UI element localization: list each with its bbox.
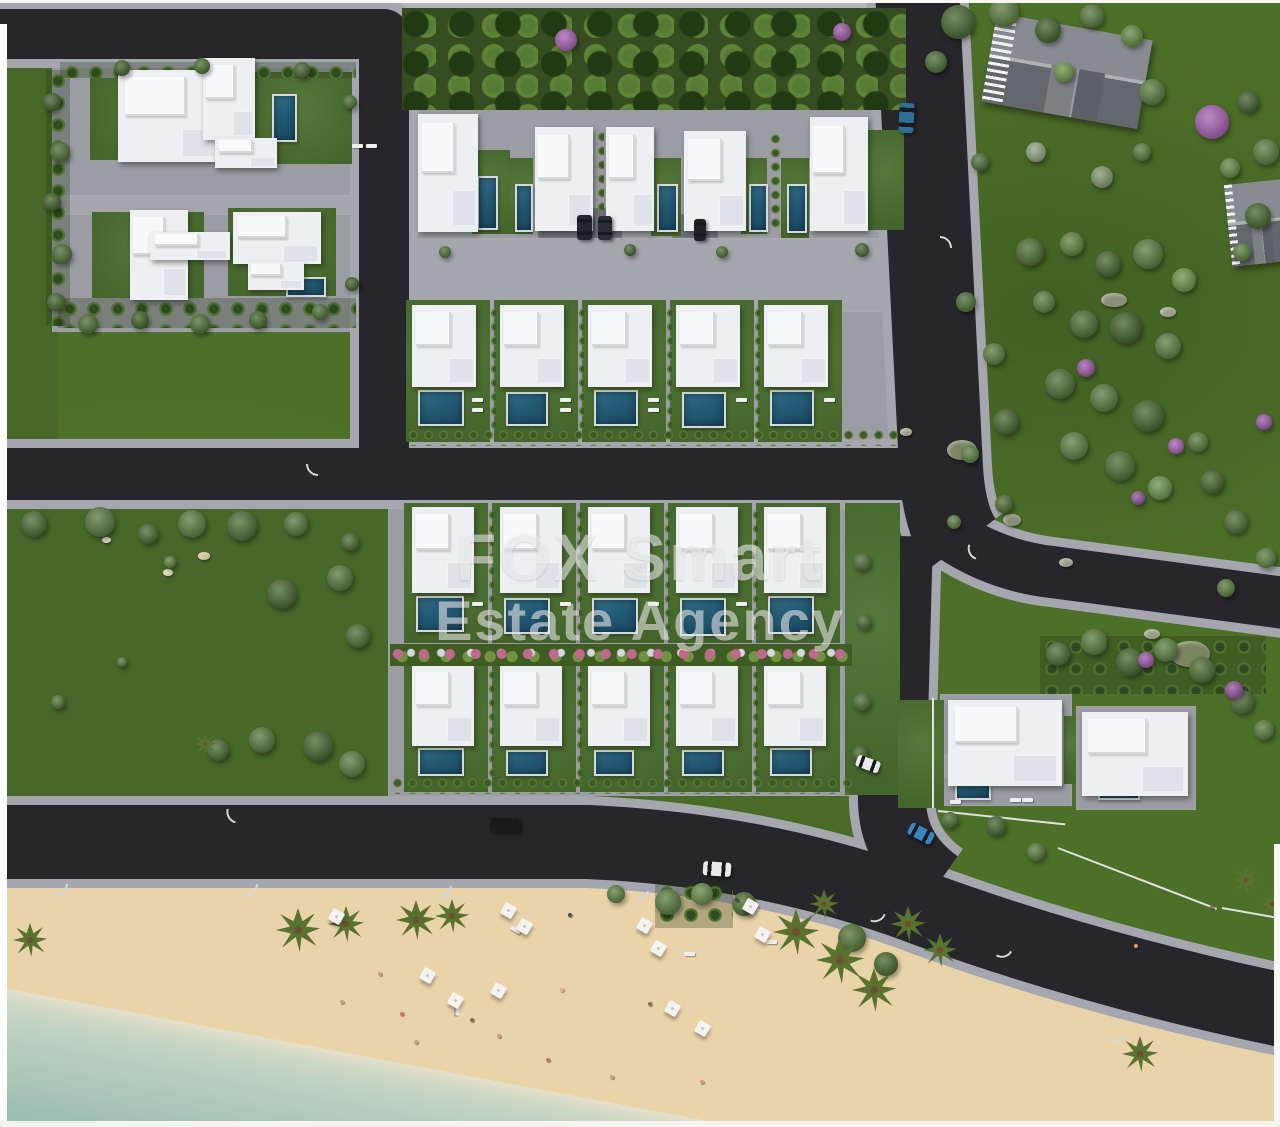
image-border-layer <box>0 0 1280 1127</box>
aerial-development-render: FOX Smart Estate Agency <box>0 0 1280 1127</box>
image-border <box>1274 844 1280 1121</box>
image-border <box>0 24 7 1121</box>
image-border <box>0 0 1280 3</box>
image-border <box>0 1121 1280 1127</box>
